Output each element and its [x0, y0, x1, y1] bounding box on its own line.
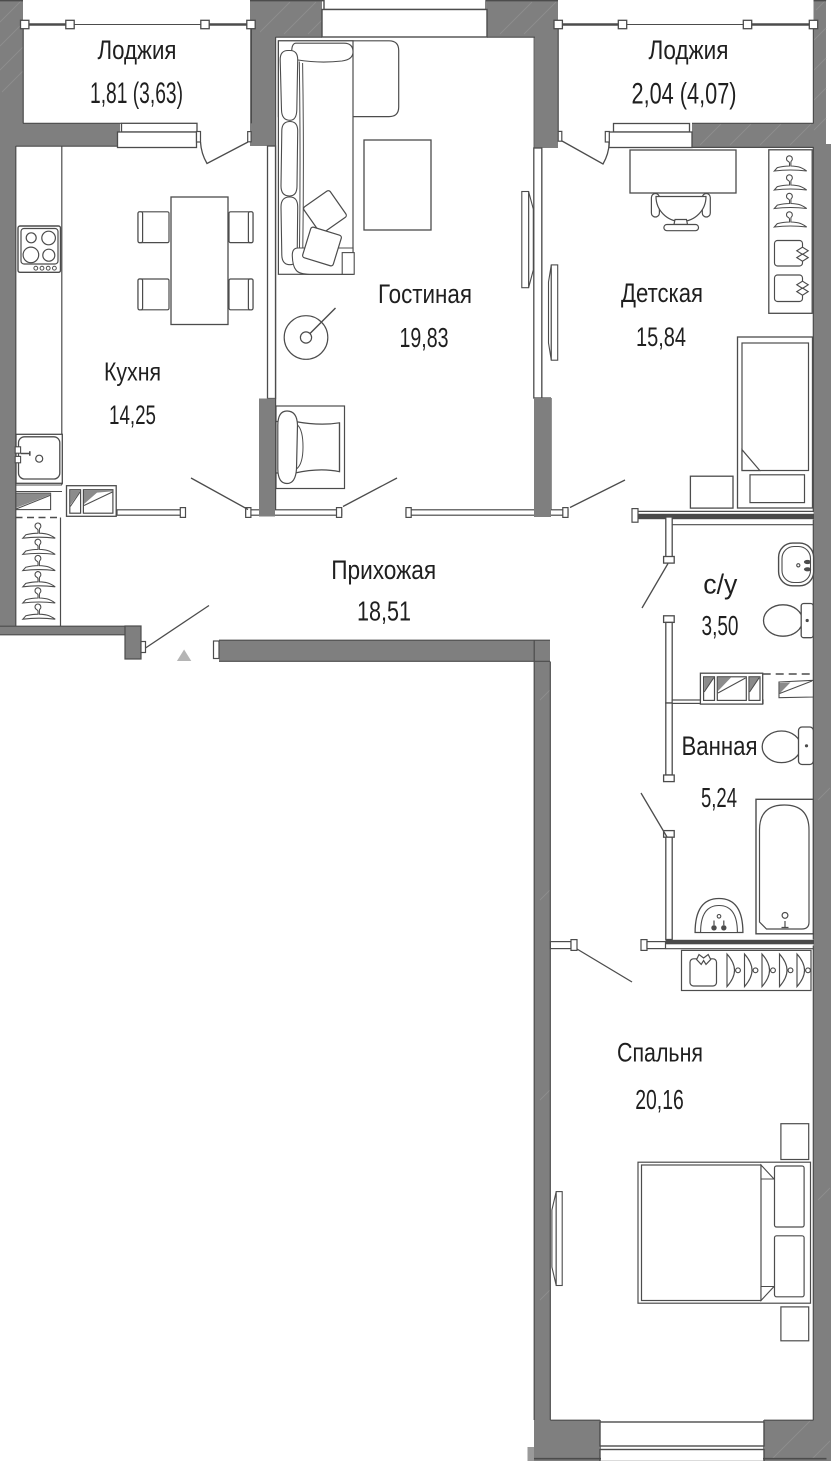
svg-text:1,81 (3,63): 1,81 (3,63) — [90, 77, 183, 110]
svg-text:18,51: 18,51 — [357, 596, 411, 627]
svg-text:15,84: 15,84 — [636, 322, 686, 352]
svg-text:Кухня: Кухня — [104, 357, 161, 387]
svg-text:3,50: 3,50 — [702, 610, 739, 641]
svg-text:с/у: с/у — [703, 569, 737, 600]
svg-text:20,16: 20,16 — [635, 1084, 684, 1115]
svg-text:Лоджия: Лоджия — [649, 35, 729, 65]
svg-text:19,83: 19,83 — [400, 322, 449, 353]
svg-text:Прихожая: Прихожая — [331, 555, 436, 585]
svg-text:2,04 (4,07): 2,04 (4,07) — [632, 78, 737, 111]
svg-text:5,24: 5,24 — [701, 782, 737, 813]
svg-text:Лоджия: Лоджия — [98, 35, 177, 65]
svg-text:Спальня: Спальня — [617, 1037, 703, 1067]
svg-text:14,25: 14,25 — [109, 400, 156, 430]
svg-text:Детская: Детская — [621, 278, 703, 308]
svg-text:Гостиная: Гостиная — [378, 279, 472, 309]
svg-text:Ванная: Ванная — [682, 731, 758, 761]
